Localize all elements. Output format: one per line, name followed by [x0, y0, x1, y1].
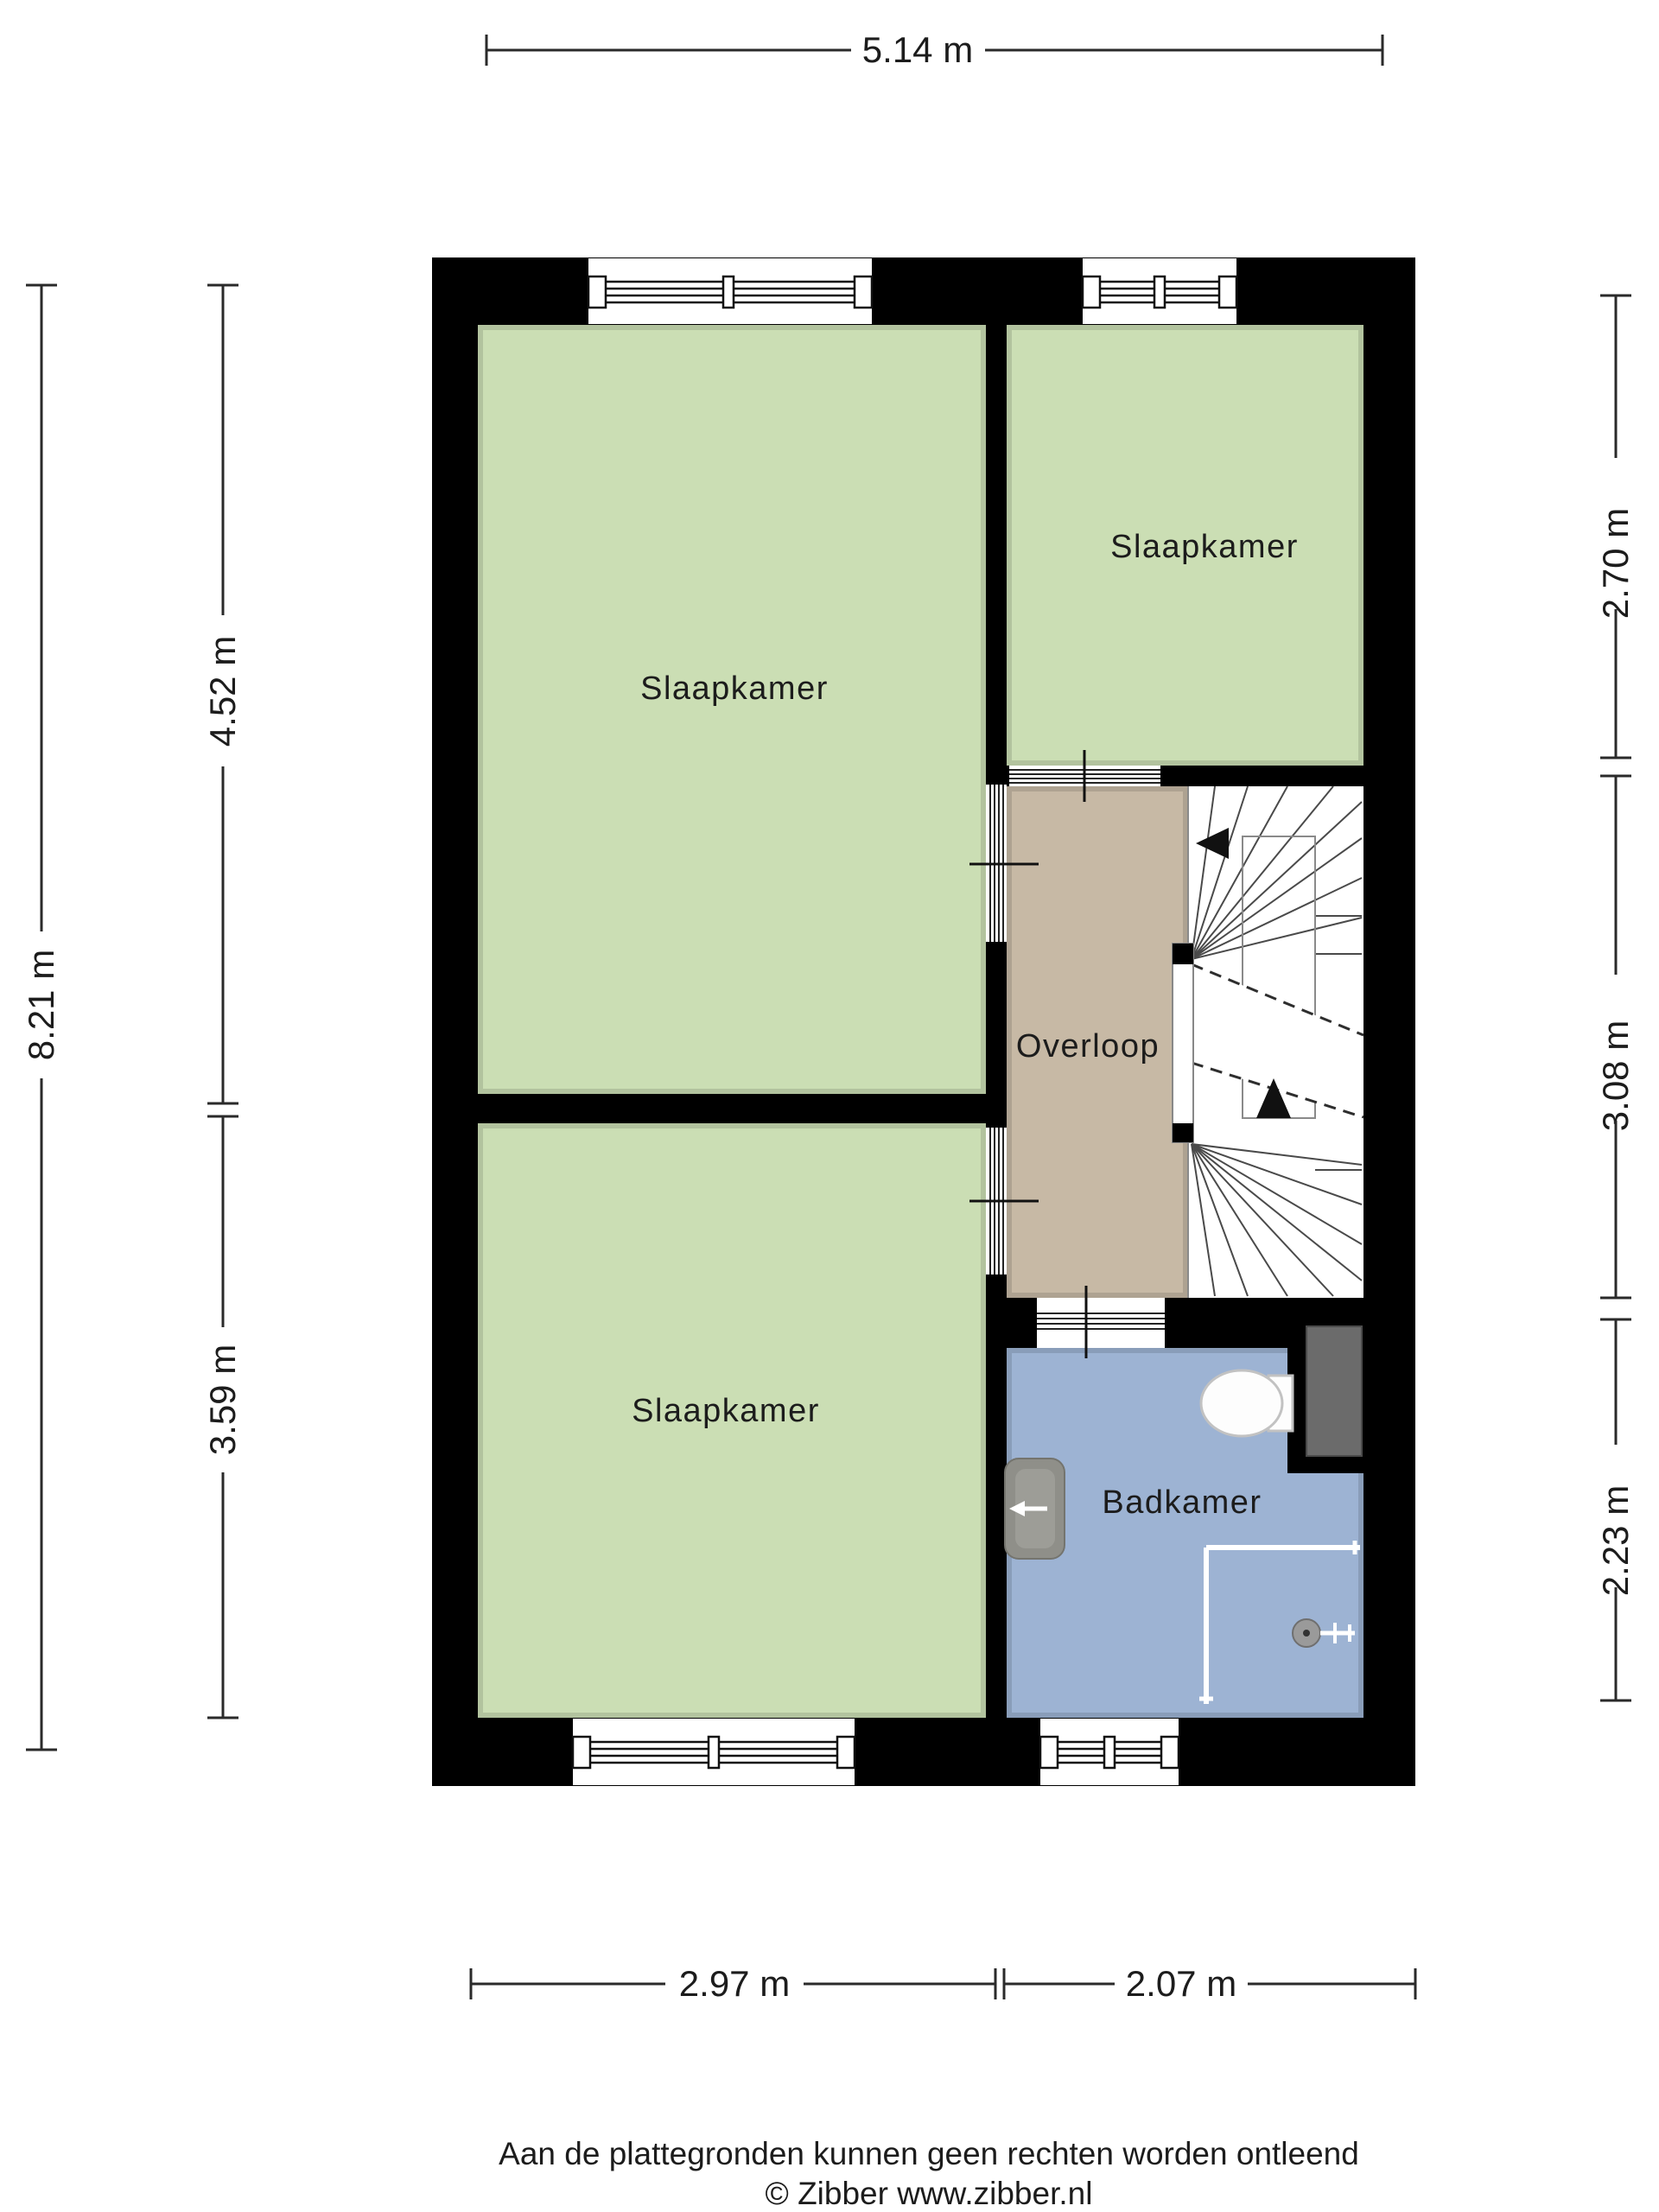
wall-exterior-right [1363, 257, 1415, 1786]
wall-between-bedrooms [478, 1094, 1007, 1123]
dimension-right-top: 2.70 m [1595, 296, 1636, 758]
dimension-bottom-right-label: 2.07 m [1126, 1963, 1236, 2004]
room-bedroom-upper-left [478, 325, 986, 1094]
wall-exterior-left [432, 257, 478, 1786]
dimension-top-width-label: 5.14 m [862, 29, 973, 70]
room-label-hallway: Overloop [1016, 1028, 1160, 1065]
footer: Aan de plattegronden kunnen geen rechten… [499, 2136, 1359, 2211]
dimension-bottom-left: 2.97 m [471, 1963, 995, 2004]
footer-copyright: © Zibber www.zibber.nl [766, 2176, 1093, 2211]
floor-plan-page: Slaapkamer Slaapkamer Slaapkamer Overloo… [0, 0, 1659, 2212]
dimension-top-width: 5.14 m [486, 29, 1382, 70]
room-label-bedroom-top-right: Slaapkamer [1110, 529, 1299, 565]
duct-shaft [1287, 1298, 1363, 1473]
wall-interior-vertical [986, 325, 1007, 1718]
dimension-left-lower: 3.59 m [202, 1116, 243, 1718]
dimension-left-upper: 4.52 m [202, 285, 243, 1103]
dimension-right-bottom: 2.23 m [1595, 1319, 1636, 1700]
footer-disclaimer: Aan de plattegronden kunnen geen rechten… [499, 2136, 1359, 2171]
dimension-left-total-label: 8.21 m [21, 950, 61, 1060]
dimension-right-bottom-label: 2.23 m [1595, 1485, 1636, 1596]
dimension-left-lower-label: 3.59 m [202, 1344, 243, 1455]
window-bottom-left-icon [573, 1719, 855, 1785]
dimension-left-total: 8.21 m [21, 285, 61, 1750]
room-label-bathroom: Badkamer [1102, 1484, 1262, 1521]
dimension-left-upper-label: 4.52 m [202, 636, 243, 747]
window-top-left-icon [588, 258, 872, 324]
dimension-right-middle-label: 3.08 m [1595, 1020, 1636, 1131]
room-label-bedroom-upper-left: Slaapkamer [640, 671, 829, 707]
sink-icon [1005, 1459, 1065, 1559]
dimension-right-middle: 3.08 m [1595, 776, 1636, 1298]
dimension-bottom-left-label: 2.97 m [679, 1963, 790, 2004]
stairs-railing [1173, 944, 1193, 1142]
window-bottom-right-icon [1040, 1719, 1179, 1785]
dimension-bottom-right: 2.07 m [1004, 1963, 1415, 2004]
floor-plan: Slaapkamer Slaapkamer Slaapkamer Overloo… [0, 0, 1659, 2212]
wall-exterior-top [432, 257, 1415, 325]
dimension-right-top-label: 2.70 m [1595, 508, 1636, 619]
window-top-right-icon [1083, 258, 1236, 324]
toilet-icon [1201, 1370, 1293, 1436]
room-label-bedroom-lower-left: Slaapkamer [632, 1393, 820, 1429]
